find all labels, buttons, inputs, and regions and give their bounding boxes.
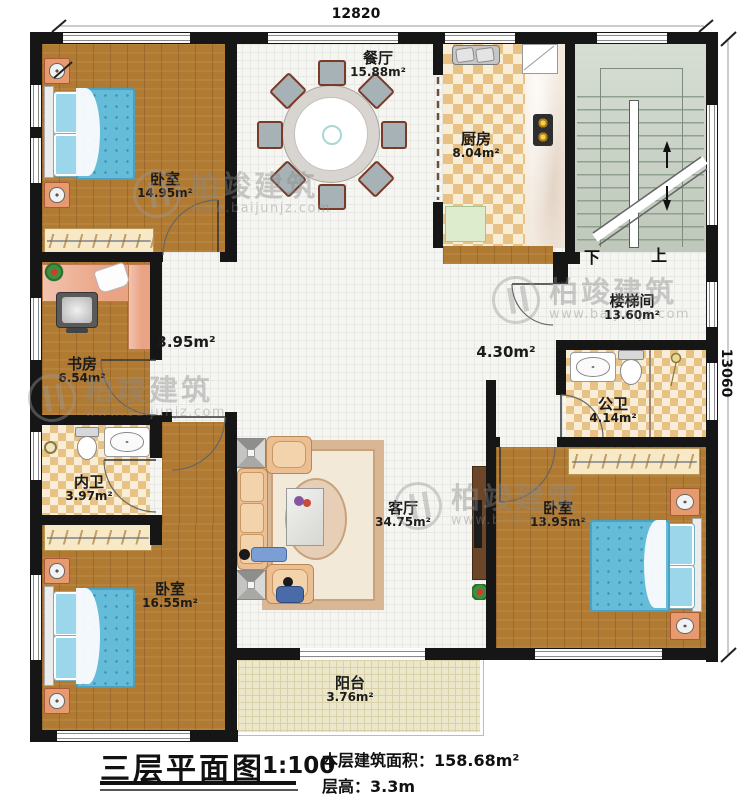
title-underline	[100, 781, 296, 785]
person-body	[251, 547, 287, 562]
dining-table-center	[322, 125, 342, 145]
room-name: 楼梯间	[604, 293, 660, 309]
window	[268, 33, 398, 43]
person	[239, 549, 250, 560]
room-name: 客厅	[375, 500, 431, 516]
kitchen-corner-unit	[522, 44, 558, 74]
room-area: 4.14m²	[589, 412, 636, 425]
sink-basin	[475, 47, 495, 63]
dimension-top: 12820	[316, 6, 396, 22]
shower-divider	[649, 350, 651, 437]
window	[31, 85, 41, 127]
room-area: 13.60m²	[604, 309, 660, 322]
plan-height-text: 层高：3.3m	[322, 773, 415, 797]
room-name: 公卫	[589, 396, 636, 412]
floor-drain	[44, 441, 57, 454]
sofa-cushion	[240, 503, 264, 533]
bed-headboard	[44, 586, 54, 686]
title-underline-thin	[100, 789, 298, 791]
room-label-bedroom-topleft: 卧室 14.95m²	[137, 171, 193, 200]
coffee-table	[286, 488, 324, 546]
wardrobe	[44, 524, 152, 551]
room-area: 6.54m²	[58, 372, 105, 385]
dining-chair	[381, 121, 407, 149]
nightstand	[44, 182, 70, 208]
hall-area: 3.95m²	[156, 334, 215, 350]
bathroom-sink	[104, 427, 150, 457]
stair-treads	[577, 96, 704, 247]
room-area: 15.88m²	[350, 66, 406, 79]
wall	[237, 648, 300, 660]
wall	[425, 648, 492, 660]
room-name: 餐厅	[350, 50, 406, 66]
stairs-down-label: 下	[584, 244, 600, 268]
room-name: 卧室	[137, 171, 193, 187]
wall	[565, 252, 580, 264]
room-name: 厨房	[452, 131, 499, 147]
window	[707, 363, 717, 420]
wall	[486, 380, 496, 648]
room-label-kitchen: 厨房 8.04m²	[452, 131, 499, 160]
monitor-stand	[66, 328, 88, 333]
wall	[150, 515, 162, 545]
wall	[433, 202, 443, 248]
room-area: 3.76m²	[326, 691, 373, 704]
wardrobe	[44, 228, 154, 254]
room-area: 16.55m²	[142, 597, 198, 610]
room-label-stairwell: 楼梯间 13.60m²	[604, 293, 660, 322]
room-name: 阳台	[326, 675, 373, 691]
room-label-bath-private: 内卫 3.97m²	[65, 474, 112, 503]
stair-guide-top	[600, 68, 683, 69]
room-label-bath-public: 公卫 4.14m²	[589, 396, 636, 425]
side-table	[236, 438, 266, 468]
room-label-balcony: 阳台 3.76m²	[326, 675, 373, 704]
hall-area-right: 4.30m²	[476, 344, 535, 360]
window	[707, 105, 717, 225]
wall	[150, 425, 162, 458]
kitchen-counter	[525, 44, 565, 248]
kitchen-threshold	[443, 246, 553, 264]
tv	[474, 500, 482, 548]
wall	[30, 515, 162, 525]
stair-guide-right	[682, 68, 683, 247]
wall	[556, 350, 566, 395]
plant-icon	[44, 262, 64, 282]
pillow	[666, 524, 694, 566]
dining-chair	[318, 60, 346, 86]
armchair-cushion	[272, 441, 306, 468]
nightstand	[670, 612, 700, 640]
nightstand	[670, 488, 700, 516]
nightstand	[44, 688, 70, 714]
window	[707, 282, 717, 327]
room-label-dining: 餐厅 15.88m²	[350, 50, 406, 79]
dining-chair	[318, 184, 346, 210]
room-area: 8.04m²	[452, 147, 499, 160]
room-name: 内卫	[65, 474, 112, 490]
room-area: 34.75m²	[375, 516, 431, 529]
wall	[433, 44, 443, 75]
room-area: 3.97m²	[65, 490, 112, 503]
bed-sheet	[644, 520, 666, 608]
stairs-up-label: 上	[651, 242, 667, 266]
wall	[565, 32, 575, 252]
sofa-cushion	[240, 472, 264, 502]
stair-rail	[629, 100, 639, 248]
bed-headboard	[44, 86, 54, 178]
room-label-bedroom-bottomleft: 卧室 16.55m²	[142, 581, 198, 610]
pillow	[666, 566, 694, 608]
window	[57, 731, 190, 741]
side-table	[236, 570, 266, 600]
floor-entry-nook	[162, 422, 225, 525]
balcony-sliding-door	[300, 649, 425, 659]
desk-return	[128, 264, 152, 350]
window	[31, 298, 41, 360]
wall	[557, 437, 706, 447]
nightstand	[44, 58, 70, 84]
room-name: 卧室	[142, 581, 198, 597]
dimension-right: 13060	[718, 338, 734, 408]
room-label-study: 书房 6.54m²	[58, 356, 105, 385]
wardrobe	[568, 448, 700, 475]
wall	[225, 32, 237, 262]
room-label-living: 客厅 34.75m²	[375, 500, 431, 529]
hall-area-left: 3.95m²	[156, 334, 215, 350]
window	[31, 575, 41, 660]
sink-basin	[455, 47, 475, 63]
hall-area: 4.30m²	[476, 344, 535, 360]
dining-chair	[257, 121, 283, 149]
room-area: 14.95m²	[137, 187, 193, 200]
window	[597, 33, 667, 43]
person-body	[276, 586, 304, 603]
room-label-bedroom-right: 卧室 13.95m²	[530, 500, 586, 529]
wall	[556, 340, 706, 350]
plan-area-text: 本层建筑面积：158.68m²	[322, 747, 519, 771]
stove-burner	[537, 131, 549, 143]
nightstand	[44, 558, 70, 584]
kitchen-cabinet	[445, 206, 486, 242]
wall	[225, 412, 237, 742]
window	[535, 649, 662, 659]
room-name: 书房	[58, 356, 105, 372]
floor-plan: 卧室 14.95m² 餐厅 15.88m² 厨房 8.04m² 楼梯间 13.6…	[0, 0, 750, 812]
wall	[30, 415, 162, 425]
window	[31, 432, 41, 480]
room-name: 卧室	[530, 500, 586, 516]
window	[445, 33, 515, 43]
stair-guide-left	[600, 68, 601, 247]
computer-monitor	[56, 292, 98, 328]
room-area: 13.95m²	[530, 516, 586, 529]
stove-burner	[537, 117, 549, 129]
window	[31, 138, 41, 183]
wall	[30, 252, 163, 262]
bathroom-sink	[570, 352, 616, 382]
flower-vase	[303, 499, 311, 507]
wall	[162, 412, 172, 422]
window	[63, 33, 190, 43]
